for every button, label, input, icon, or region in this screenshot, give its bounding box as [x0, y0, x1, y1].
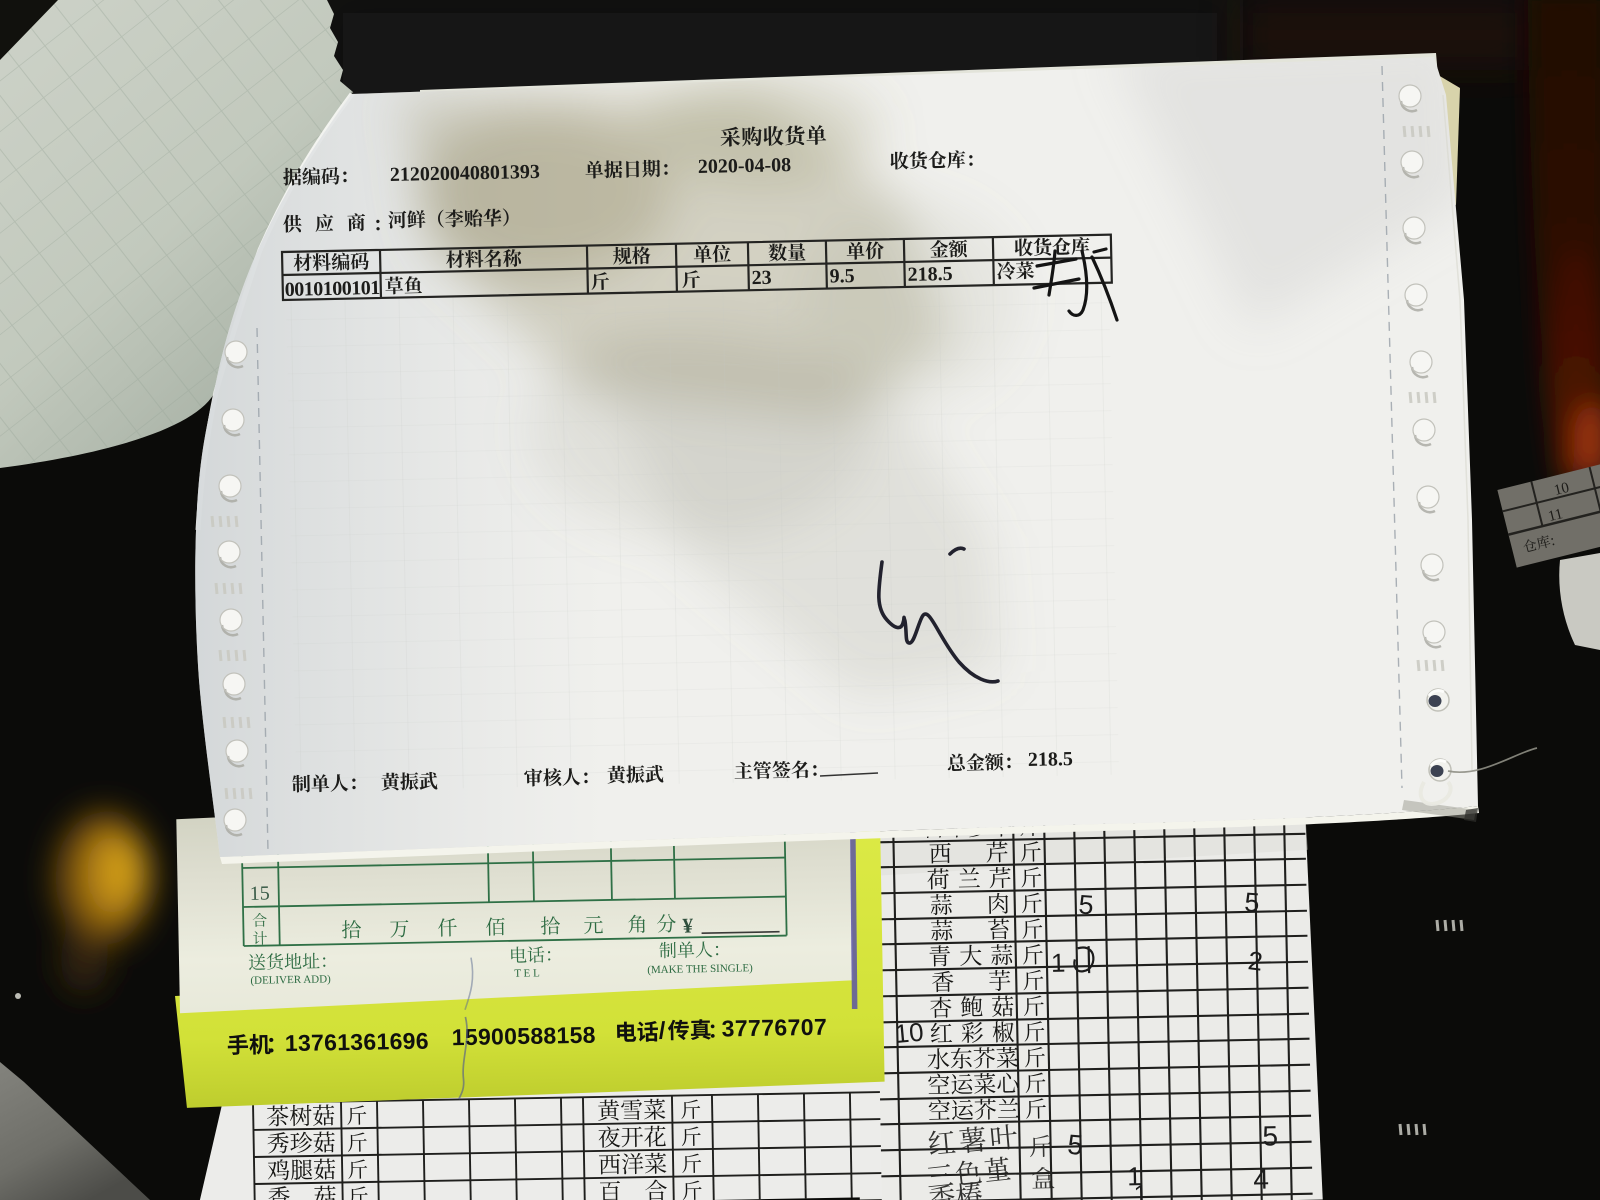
svg-text:15900588158: 15900588158 — [452, 1022, 596, 1051]
svg-text:37776707: 37776707 — [721, 1014, 827, 1042]
svg-text:¥: ¥ — [682, 913, 693, 937]
svg-text:1: 1 — [1051, 948, 1066, 978]
svg-text:212020040801393: 212020040801393 — [390, 161, 540, 186]
svg-text:218.5: 218.5 — [907, 263, 952, 286]
svg-text:23: 23 — [751, 267, 771, 289]
svg-text:13761361696: 13761361696 — [285, 1028, 429, 1057]
svg-text:218.5: 218.5 — [1028, 748, 1073, 771]
svg-text:5: 5 — [1066, 1129, 1084, 1161]
svg-text:(DELIVER ADD): (DELIVER ADD) — [250, 973, 331, 987]
svg-text:5: 5 — [1078, 889, 1095, 920]
svg-text:T E L: T E L — [514, 967, 540, 979]
svg-text:1: 1 — [1133, 1179, 1148, 1200]
svg-text:4: 4 — [1253, 1164, 1269, 1195]
svg-text:/: / — [658, 1017, 665, 1044]
svg-text:0010100101: 0010100101 — [285, 277, 380, 301]
svg-text:(MAKE THE SINGLE): (MAKE THE SINGLE) — [647, 962, 753, 976]
svg-text:5: 5 — [1244, 887, 1261, 918]
svg-text:9.5: 9.5 — [829, 265, 854, 288]
svg-text:2020-04-08: 2020-04-08 — [698, 154, 792, 178]
svg-text:10: 10 — [893, 1017, 924, 1049]
svg-text:5: 5 — [1262, 1120, 1278, 1151]
svg-text:15: 15 — [250, 882, 270, 904]
